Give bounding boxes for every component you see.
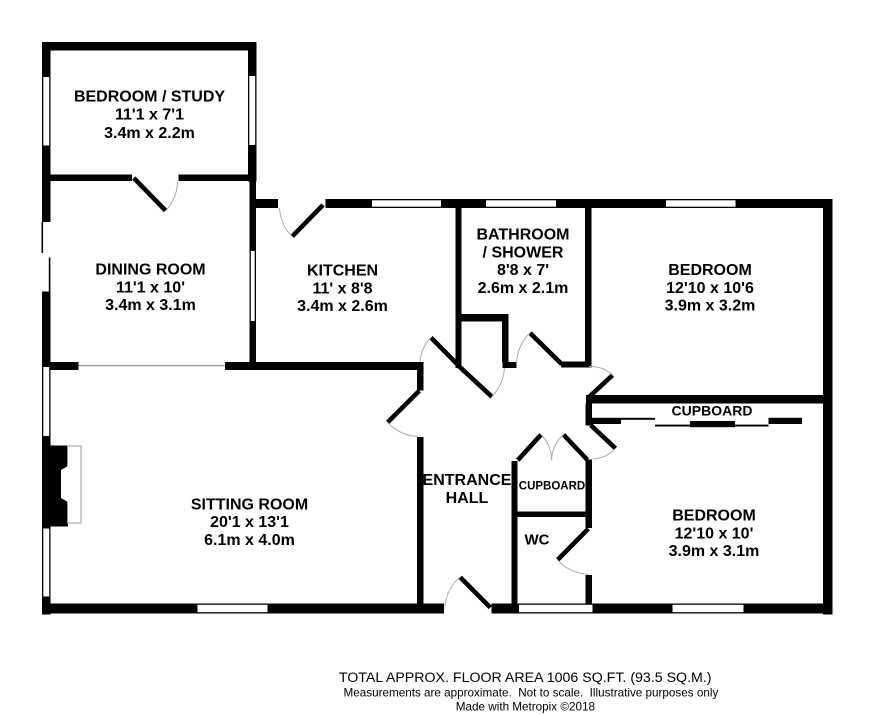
svg-text:BATHROOM: BATHROOM: [476, 227, 569, 244]
svg-text:SITTING ROOM: SITTING ROOM: [191, 496, 308, 513]
svg-text:12'10 x 10'6: 12'10 x 10'6: [666, 280, 754, 297]
svg-text:8'8 x 7': 8'8 x 7': [497, 262, 549, 279]
svg-text:HALL: HALL: [446, 490, 489, 507]
svg-text:2.6m x 2.1m: 2.6m x 2.1m: [478, 280, 569, 297]
svg-text:3.4m x 3.1m: 3.4m x 3.1m: [105, 297, 196, 314]
svg-text:3.4m x 2.2m: 3.4m x 2.2m: [104, 125, 195, 142]
svg-text:/ SHOWER: / SHOWER: [483, 244, 564, 261]
svg-text:BEDROOM / STUDY: BEDROOM / STUDY: [74, 88, 225, 105]
svg-text:20'1 x 13'1: 20'1 x 13'1: [210, 514, 289, 531]
svg-text:CUPBOARD: CUPBOARD: [672, 403, 753, 419]
svg-text:CUPBOARD: CUPBOARD: [519, 481, 585, 493]
svg-text:Measurements are approximate.: Measurements are approximate. Not to sca…: [343, 686, 718, 699]
svg-text:12'10 x 10': 12'10 x 10': [675, 525, 754, 542]
svg-text:3.9m x 3.1m: 3.9m x 3.1m: [669, 543, 760, 560]
svg-text:BEDROOM: BEDROOM: [668, 262, 752, 279]
svg-text:KITCHEN: KITCHEN: [307, 263, 378, 280]
svg-text:DINING ROOM: DINING ROOM: [95, 262, 205, 279]
svg-text:BEDROOM: BEDROOM: [672, 508, 756, 525]
svg-text:3.4m x 2.6m: 3.4m x 2.6m: [297, 298, 388, 315]
svg-text:Made with Metropix ©2018: Made with Metropix ©2018: [456, 701, 595, 714]
svg-text:3.9m x 3.2m: 3.9m x 3.2m: [665, 298, 756, 315]
svg-text:ENTRANCE: ENTRANCE: [423, 472, 512, 489]
svg-text:11'1 x 7'1: 11'1 x 7'1: [115, 107, 184, 124]
svg-text:11'1 x 10': 11'1 x 10': [116, 279, 185, 296]
svg-text:TOTAL APPROX. FLOOR AREA 1006: TOTAL APPROX. FLOOR AREA 1006 SQ.FT. (93…: [339, 670, 712, 686]
svg-text:WC: WC: [525, 531, 550, 548]
svg-text:11' x 8'8: 11' x 8'8: [312, 280, 372, 297]
svg-text:6.1m x 4.0m: 6.1m x 4.0m: [204, 532, 295, 549]
